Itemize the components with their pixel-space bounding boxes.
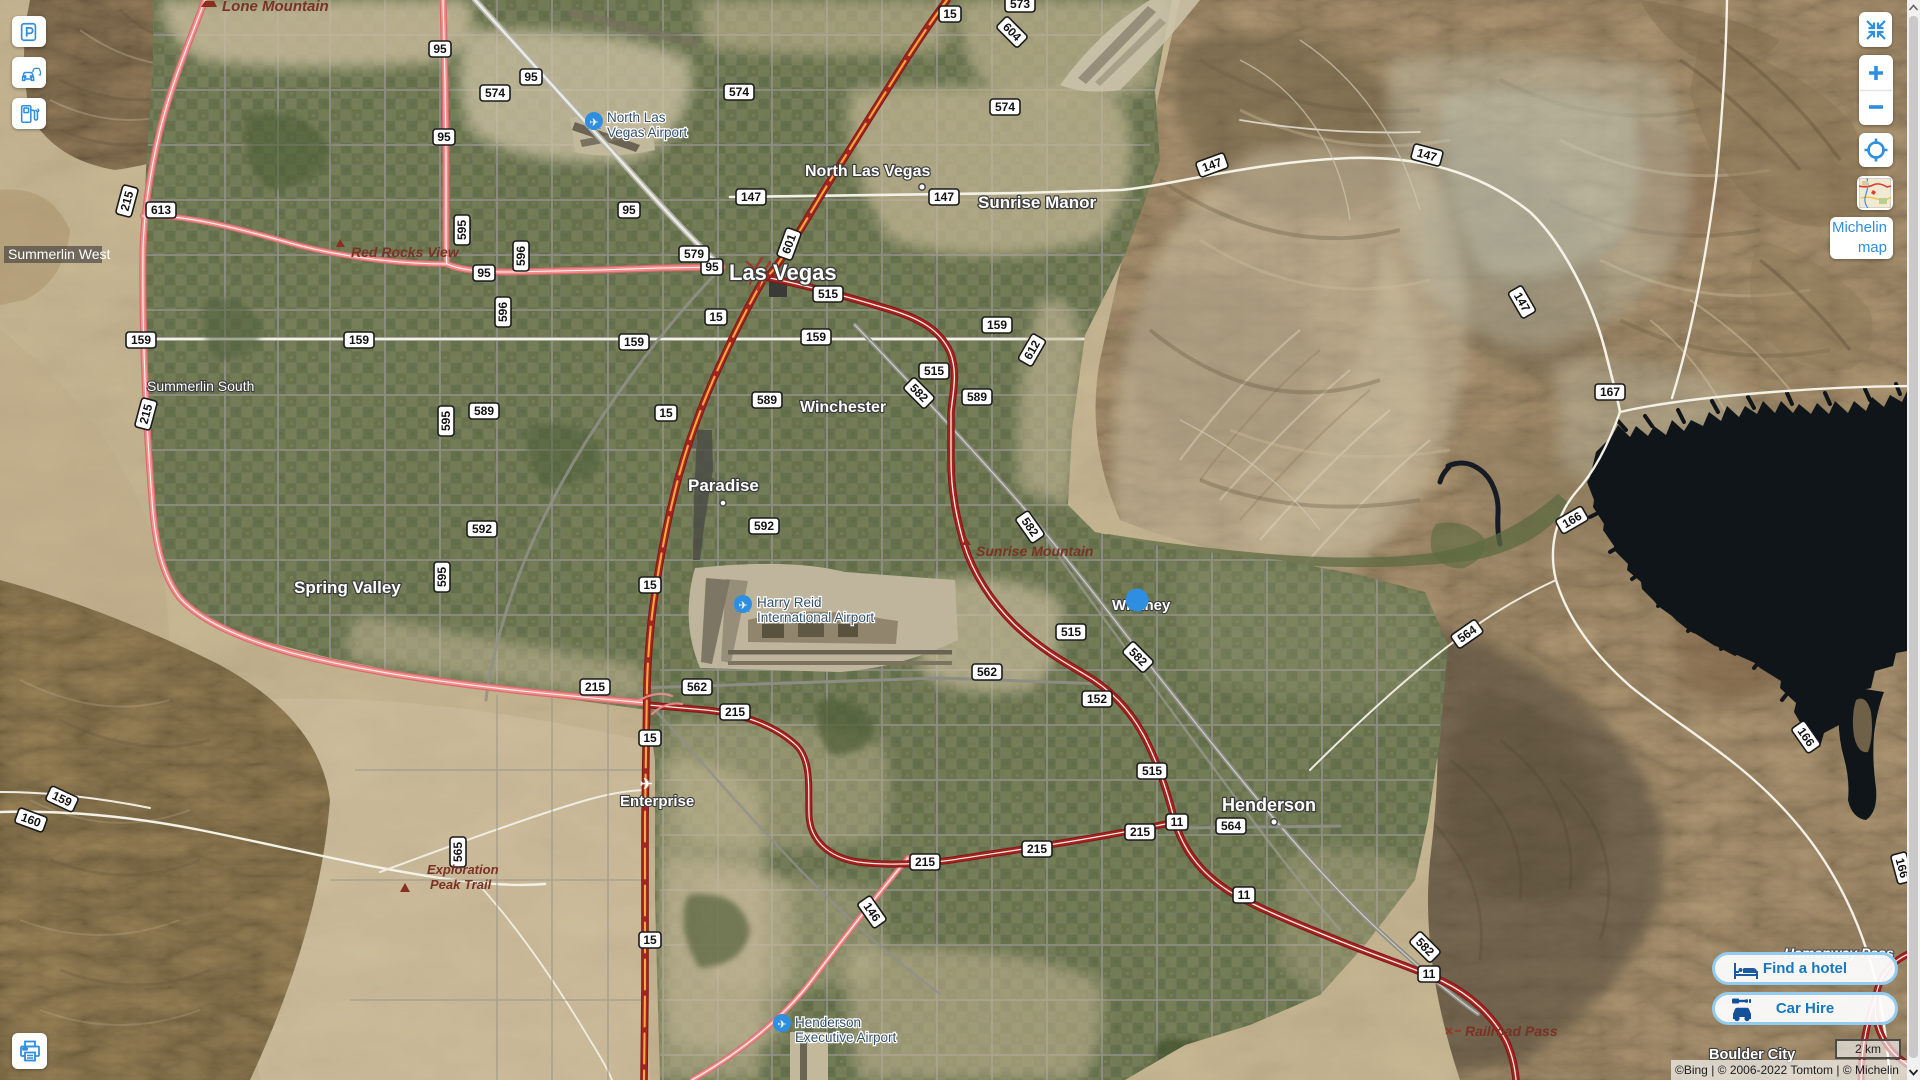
svg-text:95: 95: [622, 203, 636, 217]
svg-text:Exploration: Exploration: [427, 862, 499, 877]
svg-text:589: 589: [474, 404, 494, 418]
svg-text:15: 15: [643, 933, 657, 947]
svg-text:95: 95: [437, 130, 451, 144]
svg-text:147: 147: [934, 190, 954, 204]
svg-text:Sunrise Manor: Sunrise Manor: [978, 193, 1096, 212]
svg-text:95: 95: [433, 42, 447, 56]
svg-text:215: 215: [585, 680, 605, 694]
svg-text:592: 592: [754, 519, 774, 533]
svg-text:574: 574: [485, 86, 505, 100]
svg-text:215: 215: [725, 705, 745, 719]
svg-text:596: 596: [496, 302, 510, 322]
svg-text:564: 564: [1221, 819, 1241, 833]
svg-text:Paradise: Paradise: [688, 476, 759, 495]
svg-text:Winchester: Winchester: [800, 399, 886, 416]
svg-text:North Las: North Las: [607, 110, 666, 125]
svg-text:✈: ✈: [738, 600, 747, 612]
svg-text:Executive Airport: Executive Airport: [795, 1030, 897, 1045]
svg-text:✈: ✈: [589, 117, 598, 129]
svg-text:15: 15: [659, 406, 673, 420]
svg-text:596: 596: [514, 246, 528, 266]
svg-text:562: 562: [687, 680, 707, 694]
svg-text:✈: ✈: [640, 776, 653, 793]
svg-text:215: 215: [1027, 842, 1047, 856]
svg-text:15: 15: [643, 731, 657, 745]
svg-text:515: 515: [1061, 625, 1081, 639]
svg-text:Henderson: Henderson: [1222, 795, 1316, 815]
svg-text:Summerlin West: Summerlin West: [8, 246, 111, 262]
svg-text:Summerlin South: Summerlin South: [147, 378, 254, 394]
svg-text:574: 574: [995, 100, 1015, 114]
svg-text:515: 515: [818, 287, 838, 301]
svg-text:15: 15: [643, 578, 657, 592]
svg-text:11: 11: [1171, 815, 1184, 829]
svg-text:589: 589: [757, 393, 777, 407]
svg-text:International Airport: International Airport: [757, 610, 874, 625]
svg-text:✈: ✈: [777, 1019, 786, 1031]
svg-text:Lone Mountain: Lone Mountain: [222, 0, 329, 15]
svg-text:595: 595: [439, 411, 453, 431]
svg-text:North Las Vegas: North Las Vegas: [805, 163, 930, 180]
svg-text:15: 15: [943, 7, 957, 21]
svg-text:Enterprise: Enterprise: [620, 793, 694, 810]
svg-text:562: 562: [977, 665, 997, 679]
svg-text:579: 579: [684, 247, 704, 261]
svg-text:15: 15: [709, 310, 723, 324]
svg-text:Las Vegas: Las Vegas: [729, 260, 837, 285]
svg-text:11: 11: [1238, 888, 1251, 902]
svg-text:152: 152: [1087, 692, 1107, 706]
svg-text:215: 215: [915, 855, 935, 869]
svg-text:515: 515: [924, 364, 944, 378]
svg-text:Sunrise Mountain: Sunrise Mountain: [976, 543, 1093, 559]
svg-text:Vegas Airport: Vegas Airport: [607, 125, 688, 140]
svg-text:Harry Reid: Harry Reid: [757, 595, 822, 610]
svg-text:595: 595: [455, 220, 469, 240]
svg-text:Peak Trail: Peak Trail: [430, 877, 492, 892]
svg-text:565: 565: [451, 842, 465, 862]
svg-text:11: 11: [1423, 967, 1436, 981]
svg-text:574: 574: [729, 85, 749, 99]
svg-text:Henderson: Henderson: [795, 1015, 861, 1030]
svg-text:159: 159: [349, 333, 369, 347]
svg-text:159: 159: [131, 333, 151, 347]
svg-text:613: 613: [151, 203, 171, 217]
svg-text:159: 159: [624, 335, 644, 349]
svg-text:159: 159: [987, 318, 1007, 332]
svg-text:573: 573: [1010, 0, 1030, 11]
svg-text:Spring Valley: Spring Valley: [294, 578, 401, 597]
svg-text:167: 167: [1600, 385, 1620, 399]
svg-text:589: 589: [967, 390, 987, 404]
svg-text:515: 515: [1142, 764, 1162, 778]
svg-text:215: 215: [1130, 825, 1150, 839]
svg-text:147: 147: [741, 190, 761, 204]
svg-text:Railroad Pass: Railroad Pass: [1465, 1023, 1558, 1039]
svg-text:95: 95: [477, 266, 491, 280]
svg-text:592: 592: [472, 522, 492, 536]
svg-text:595: 595: [435, 567, 449, 587]
svg-text:Red Rocks View: Red Rocks View: [351, 244, 460, 260]
svg-text:159: 159: [806, 330, 826, 344]
svg-text:95: 95: [524, 70, 538, 84]
